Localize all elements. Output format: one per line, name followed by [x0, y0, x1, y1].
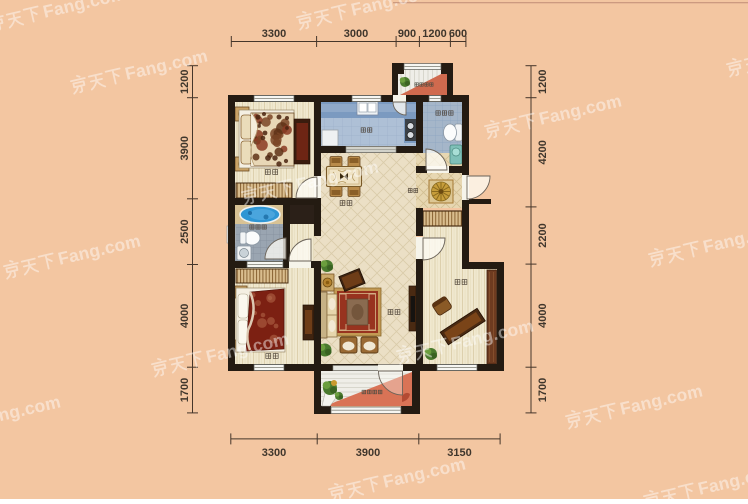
svg-text:3000: 3000 [344, 28, 368, 40]
svg-text:1200: 1200 [179, 69, 191, 93]
svg-text:3300: 3300 [262, 447, 286, 459]
svg-text:4000: 4000 [537, 303, 549, 327]
svg-text:1200: 1200 [537, 69, 549, 93]
svg-text:3900: 3900 [179, 136, 191, 160]
svg-text:2500: 2500 [179, 219, 191, 243]
svg-text:4000: 4000 [179, 304, 191, 328]
svg-text:1700: 1700 [537, 378, 549, 402]
svg-text:900: 900 [398, 28, 416, 40]
svg-text:600: 600 [449, 28, 467, 40]
svg-text:1700: 1700 [179, 378, 191, 402]
svg-text:3900: 3900 [356, 447, 380, 459]
svg-text:4200: 4200 [537, 140, 549, 164]
svg-text:1200: 1200 [422, 28, 446, 40]
svg-text:2200: 2200 [537, 223, 549, 247]
svg-text:3300: 3300 [262, 28, 286, 40]
